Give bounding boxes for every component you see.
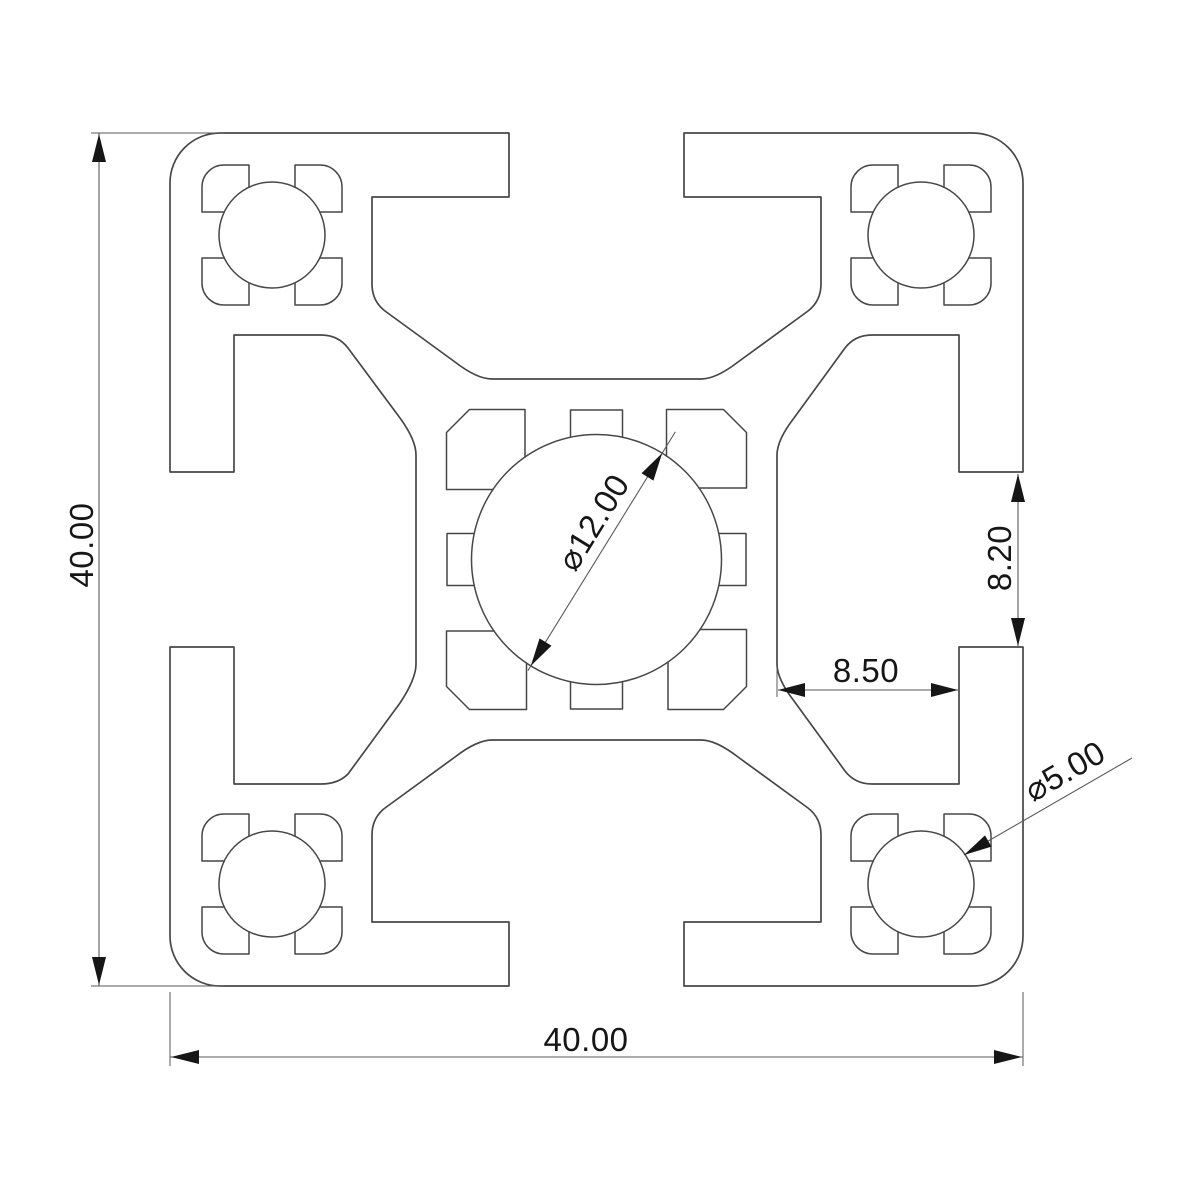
arrowhead-up: [92, 134, 106, 162]
dim-corner-bore: ⌀5.00: [944, 722, 1136, 860]
dimension-label: 8.50: [833, 652, 899, 689]
corner-screw-channel-top-left: [202, 165, 342, 305]
corner-screw-channel-bottom-right: [851, 814, 991, 954]
center-keyway-top: [571, 410, 623, 437]
dim-center-bore: ⌀12.00: [493, 410, 681, 674]
center-pocket-top-right: [667, 410, 747, 489]
arrowhead-left: [171, 1050, 199, 1064]
dim-slot-opening: 8.20: [981, 474, 1025, 646]
dim-overall-width: 40.00: [170, 992, 1023, 1066]
arrowhead-right: [994, 1050, 1022, 1064]
center-keyway-left: [447, 534, 474, 586]
center-pocket-top-left: [447, 410, 526, 490]
arrowhead-right: [931, 683, 958, 697]
drawing-canvas: 40.00 40.00 8.20 8.50: [0, 0, 1200, 1200]
dimension-label: 40.00: [543, 1021, 628, 1058]
dimension-label: ⌀12.00: [550, 468, 637, 577]
dimension-label: 8.20: [981, 525, 1018, 591]
dim-slot-depth: 8.50: [777, 652, 958, 697]
arrowhead: [961, 835, 992, 860]
arrowhead-down: [92, 957, 106, 985]
arrowhead-down: [1011, 618, 1025, 646]
center-keyway-right: [719, 534, 746, 586]
dimension-label: 40.00: [63, 502, 100, 587]
arrowhead-left: [778, 683, 805, 697]
extrusion-profile-technical-drawing: 40.00 40.00 8.20 8.50: [0, 0, 1200, 1200]
corner-screw-channel-bottom-left: [202, 814, 342, 954]
center-pocket-bottom-left: [447, 631, 527, 710]
center-pocket-bottom-right: [668, 630, 747, 710]
dim-overall-height: 40.00: [63, 133, 224, 986]
corner-screw-channel-top-right: [851, 165, 991, 305]
center-keyway-bottom: [571, 682, 623, 709]
arrowhead-up: [1011, 474, 1025, 502]
